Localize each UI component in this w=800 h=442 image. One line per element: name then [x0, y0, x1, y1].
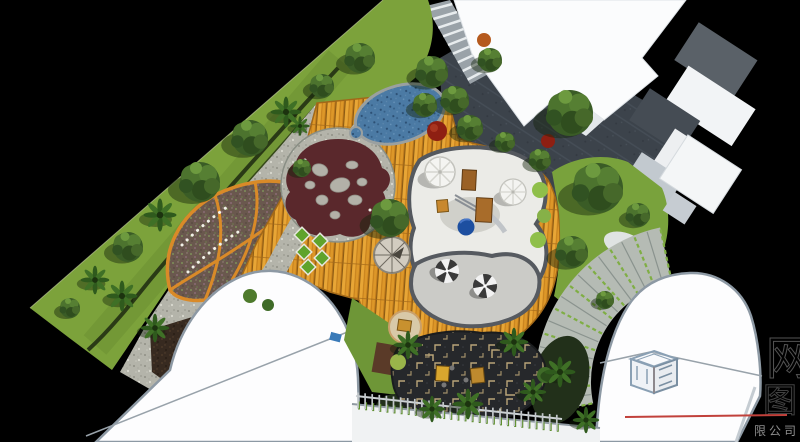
landscape-aerial-rendering: 网 图 限公司 [0, 0, 800, 442]
wood-tower-1 [461, 170, 476, 191]
light-bush [532, 182, 548, 198]
rendering-canvas: 网 图 限公司 [0, 0, 800, 442]
picnic-table [470, 367, 484, 383]
sundial-circle [374, 237, 410, 273]
blue-dome-slide [458, 219, 475, 236]
watermark-outline-glyph-top: 网 [766, 332, 800, 384]
cube-frame-logo [631, 351, 677, 393]
light-bush [537, 209, 551, 223]
orange-bush [477, 33, 491, 47]
bush [262, 299, 274, 311]
wooden-bench-box [397, 319, 411, 332]
light-bush [530, 232, 546, 248]
picnic-table [435, 366, 449, 382]
small-pond [350, 127, 362, 139]
watermark-company-text: 限公司 [754, 424, 799, 438]
light-bush [390, 354, 406, 370]
wood-tower-2 [475, 198, 492, 223]
bush [243, 289, 257, 303]
red-maple [427, 121, 447, 141]
wood-box [436, 199, 448, 212]
